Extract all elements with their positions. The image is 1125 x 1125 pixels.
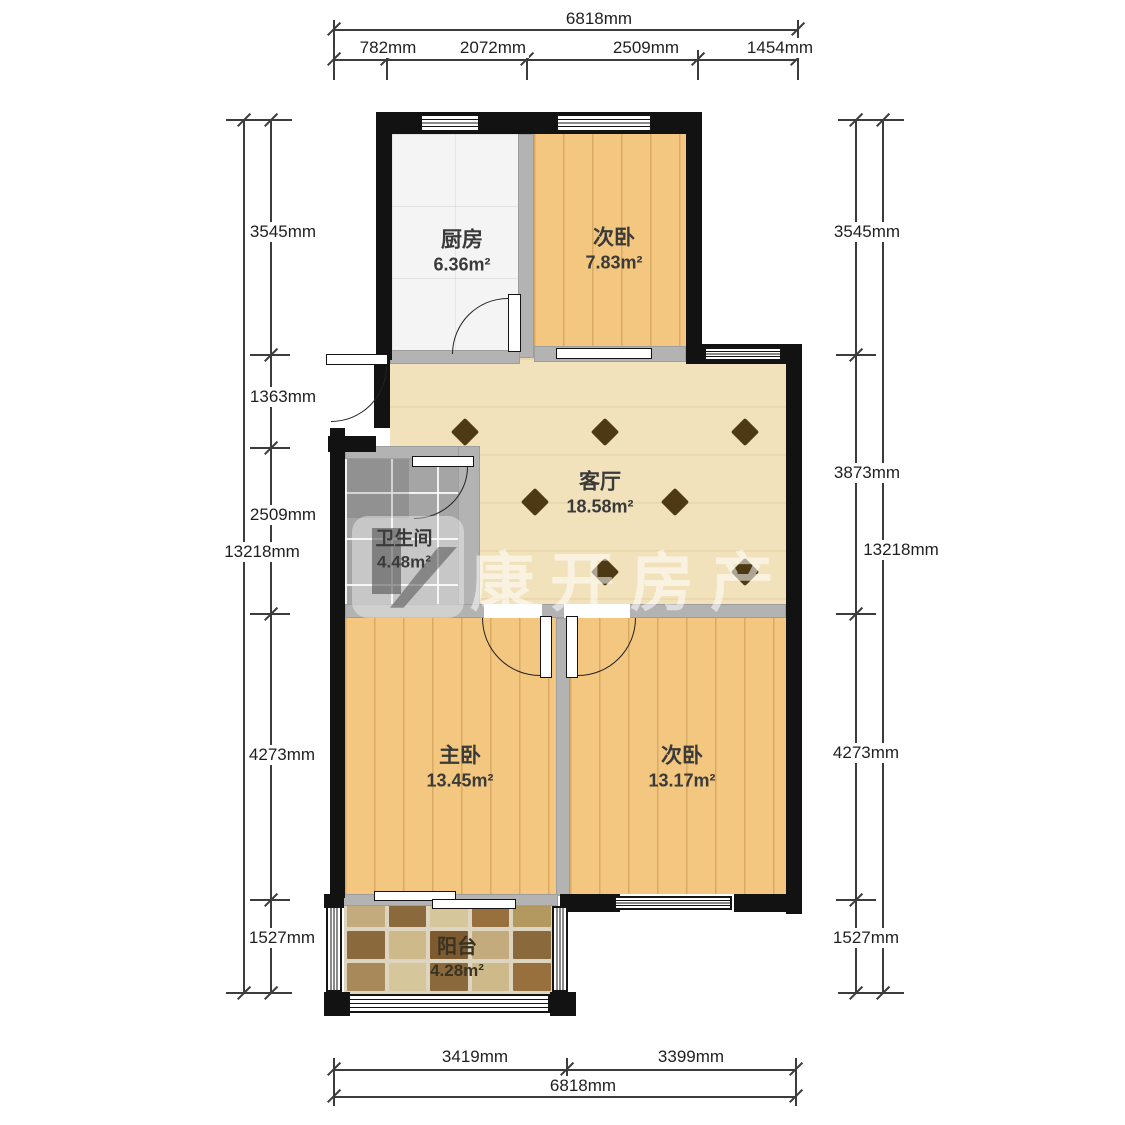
bathroom-shower-area [347,452,409,518]
dim-label-top-total: 6818mm [563,9,635,29]
dim-ext-line [226,992,292,994]
wall-balcony-corner-right [550,992,576,1016]
bathroom-door-leaf [412,456,474,467]
wall-left [330,428,345,898]
balcony-tile [389,931,427,959]
balcony-sliding-door-b [432,899,516,909]
wall-bedroom-right-bottom-left [560,894,620,912]
bedroom-right-door-leaf [566,616,578,678]
master-door-leaf [540,616,552,678]
dim-line-top-total [334,29,798,31]
dim-label-top-segment-0: 782mm [357,38,420,58]
room-label-bathroom: 卫生间 4.48m² [375,528,432,573]
dim-label-right-segment-2: 4273mm [830,743,902,763]
room-area: 7.83m² [585,252,642,275]
dim-label-bottom-segment-0: 3419mm [439,1047,511,1067]
dim-line-right-segments [855,120,857,993]
dim-line-top-segments [334,59,798,61]
balcony-tile [513,963,551,991]
window-bedroom-top [556,114,652,132]
room-name: 卫生间 [375,528,432,552]
dim-label-left-segment-2: 2509mm [247,505,319,525]
window-living-right [704,347,782,361]
dim-label-left-segment-1: 1363mm [247,387,319,407]
dim-ext-line [838,119,904,121]
room-name: 次卧 [648,744,715,770]
dim-ext-line [795,1058,797,1106]
dim-line-bottom-total [334,1096,796,1098]
balcony-tile [347,931,385,959]
dim-label-right-segment-3: 1527mm [830,928,902,948]
dim-label-right-segment-1: 3873mm [831,463,903,483]
dim-ext-line [226,119,292,121]
dim-ext-line [697,50,699,80]
dim-label-right-segment-0: 3545mm [831,222,903,242]
room-name: 客厅 [566,470,633,496]
room-area: 4.28m² [430,960,484,981]
dim-ext-line [838,992,904,994]
dim-label-left-segment-4: 1527mm [246,928,318,948]
window-balcony-right [552,906,568,992]
window-balcony-left [326,906,342,992]
room-area: 13.45m² [426,770,493,793]
wall-kitchen-left [376,112,392,360]
watermark-text: 康开房产 [470,532,790,624]
wall-right [786,344,802,914]
dim-label-top-segment-3: 1454mm [744,38,816,58]
bedroom-top-sliding-door [556,348,652,359]
entry-door-leaf [326,354,388,365]
room-area: 18.58m² [566,496,633,519]
dim-label-left-segment-3: 4273mm [246,745,318,765]
dim-label-top-segment-1: 2072mm [457,38,529,58]
room-name: 阳台 [430,935,484,960]
wall-balcony-corner-left [324,992,350,1016]
window-kitchen [420,114,480,132]
room-label-bedroom-right: 次卧 13.17m² [648,744,715,793]
room-name: 次卧 [585,226,642,252]
room-area: 6.36m² [433,254,490,277]
room-name: 厨房 [433,228,490,254]
dim-label-top-segment-2: 2509mm [610,38,682,58]
room-name: 主卧 [426,744,493,770]
room-area: 13.17m² [648,770,715,793]
balcony-tile [513,931,551,959]
room-area: 4.48m² [375,551,432,572]
dim-label-right-total: 13218mm [860,540,942,560]
room-label-master: 主卧 13.45m² [426,744,493,793]
window-balcony-bottom [348,994,550,1013]
dim-label-left-total: 13218mm [221,542,303,562]
balcony-tile [347,963,385,991]
wall-bedroom-top-right [686,112,702,364]
dim-label-bottom-total: 6818mm [547,1076,619,1096]
room-label-bedroom-top: 次卧 7.83m² [585,226,642,275]
room-label-living: 客厅 18.58m² [566,470,633,519]
floor-plan: 康开房产 厨房 6.36m² 次卧 7.83m² 客厅 18.58m² 卫生间 … [0,0,1125,1125]
room-label-balcony: 阳台 4.28m² [430,935,484,981]
dim-label-bottom-segment-1: 3399mm [655,1047,727,1067]
balcony-tile [389,963,427,991]
kitchen-door-leaf [508,294,521,352]
window-bedroom-right-bottom [614,896,732,910]
dim-label-left-segment-0: 3545mm [247,222,319,242]
room-label-kitchen: 厨房 6.36m² [433,228,490,277]
wall-bedroom-right-bottom-right [734,894,802,912]
dim-ext-line [333,1058,335,1106]
